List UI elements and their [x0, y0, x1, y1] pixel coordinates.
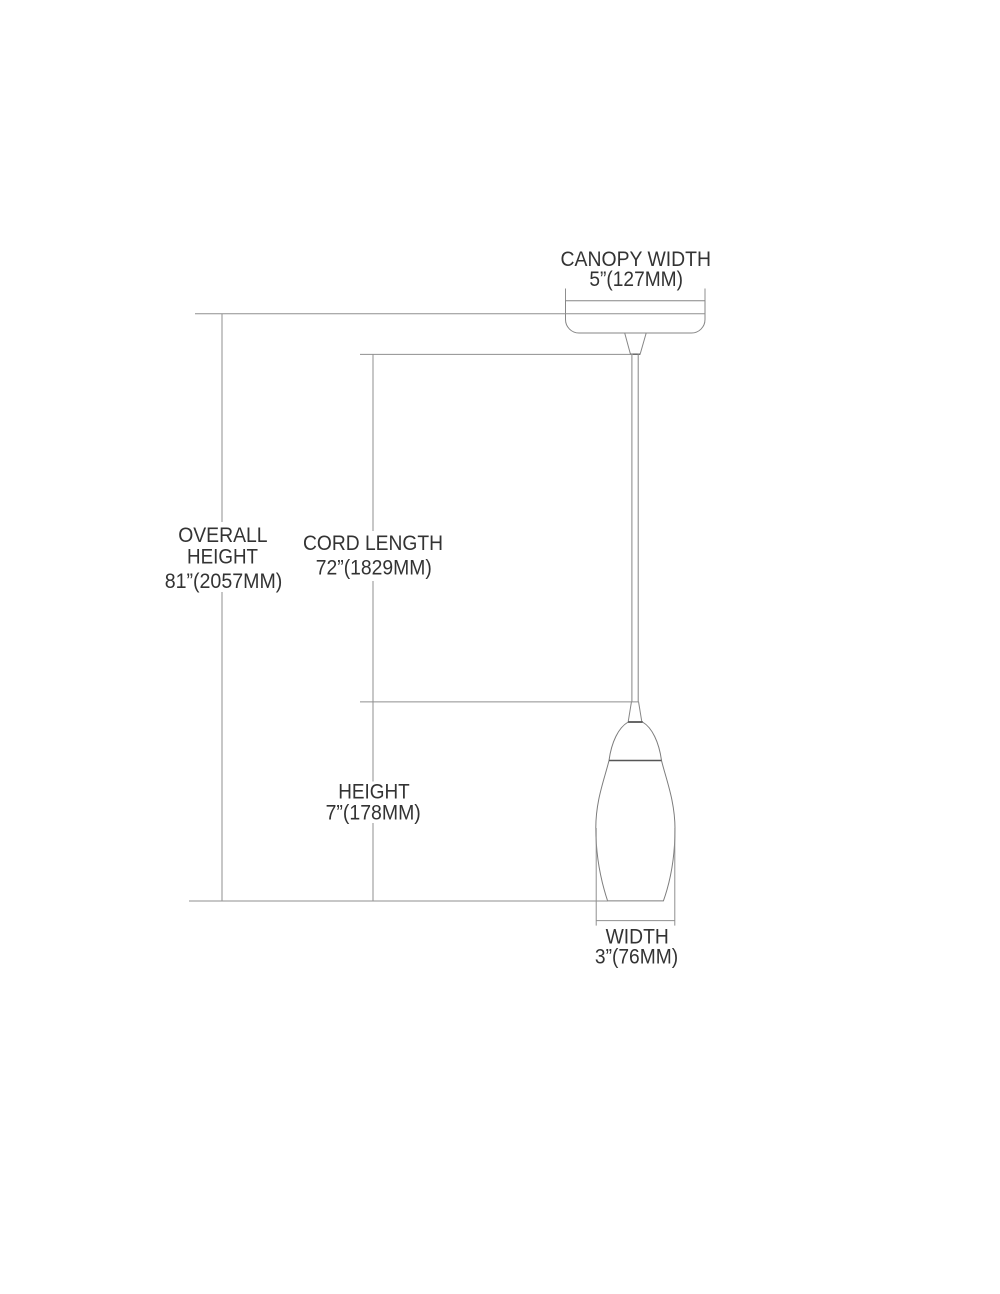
svg-text:CORD LENGTH: CORD LENGTH	[303, 531, 443, 555]
svg-text:7”(178MM): 7”(178MM)	[326, 800, 421, 824]
svg-text:5”(127MM): 5”(127MM)	[589, 267, 683, 291]
svg-text:81”(2057MM): 81”(2057MM)	[165, 569, 283, 593]
svg-text:72”(1829MM): 72”(1829MM)	[316, 556, 432, 580]
svg-text:3”(76MM): 3”(76MM)	[595, 945, 678, 969]
svg-text:OVERALL: OVERALL	[178, 523, 267, 547]
svg-text:HEIGHT: HEIGHT	[187, 545, 258, 569]
